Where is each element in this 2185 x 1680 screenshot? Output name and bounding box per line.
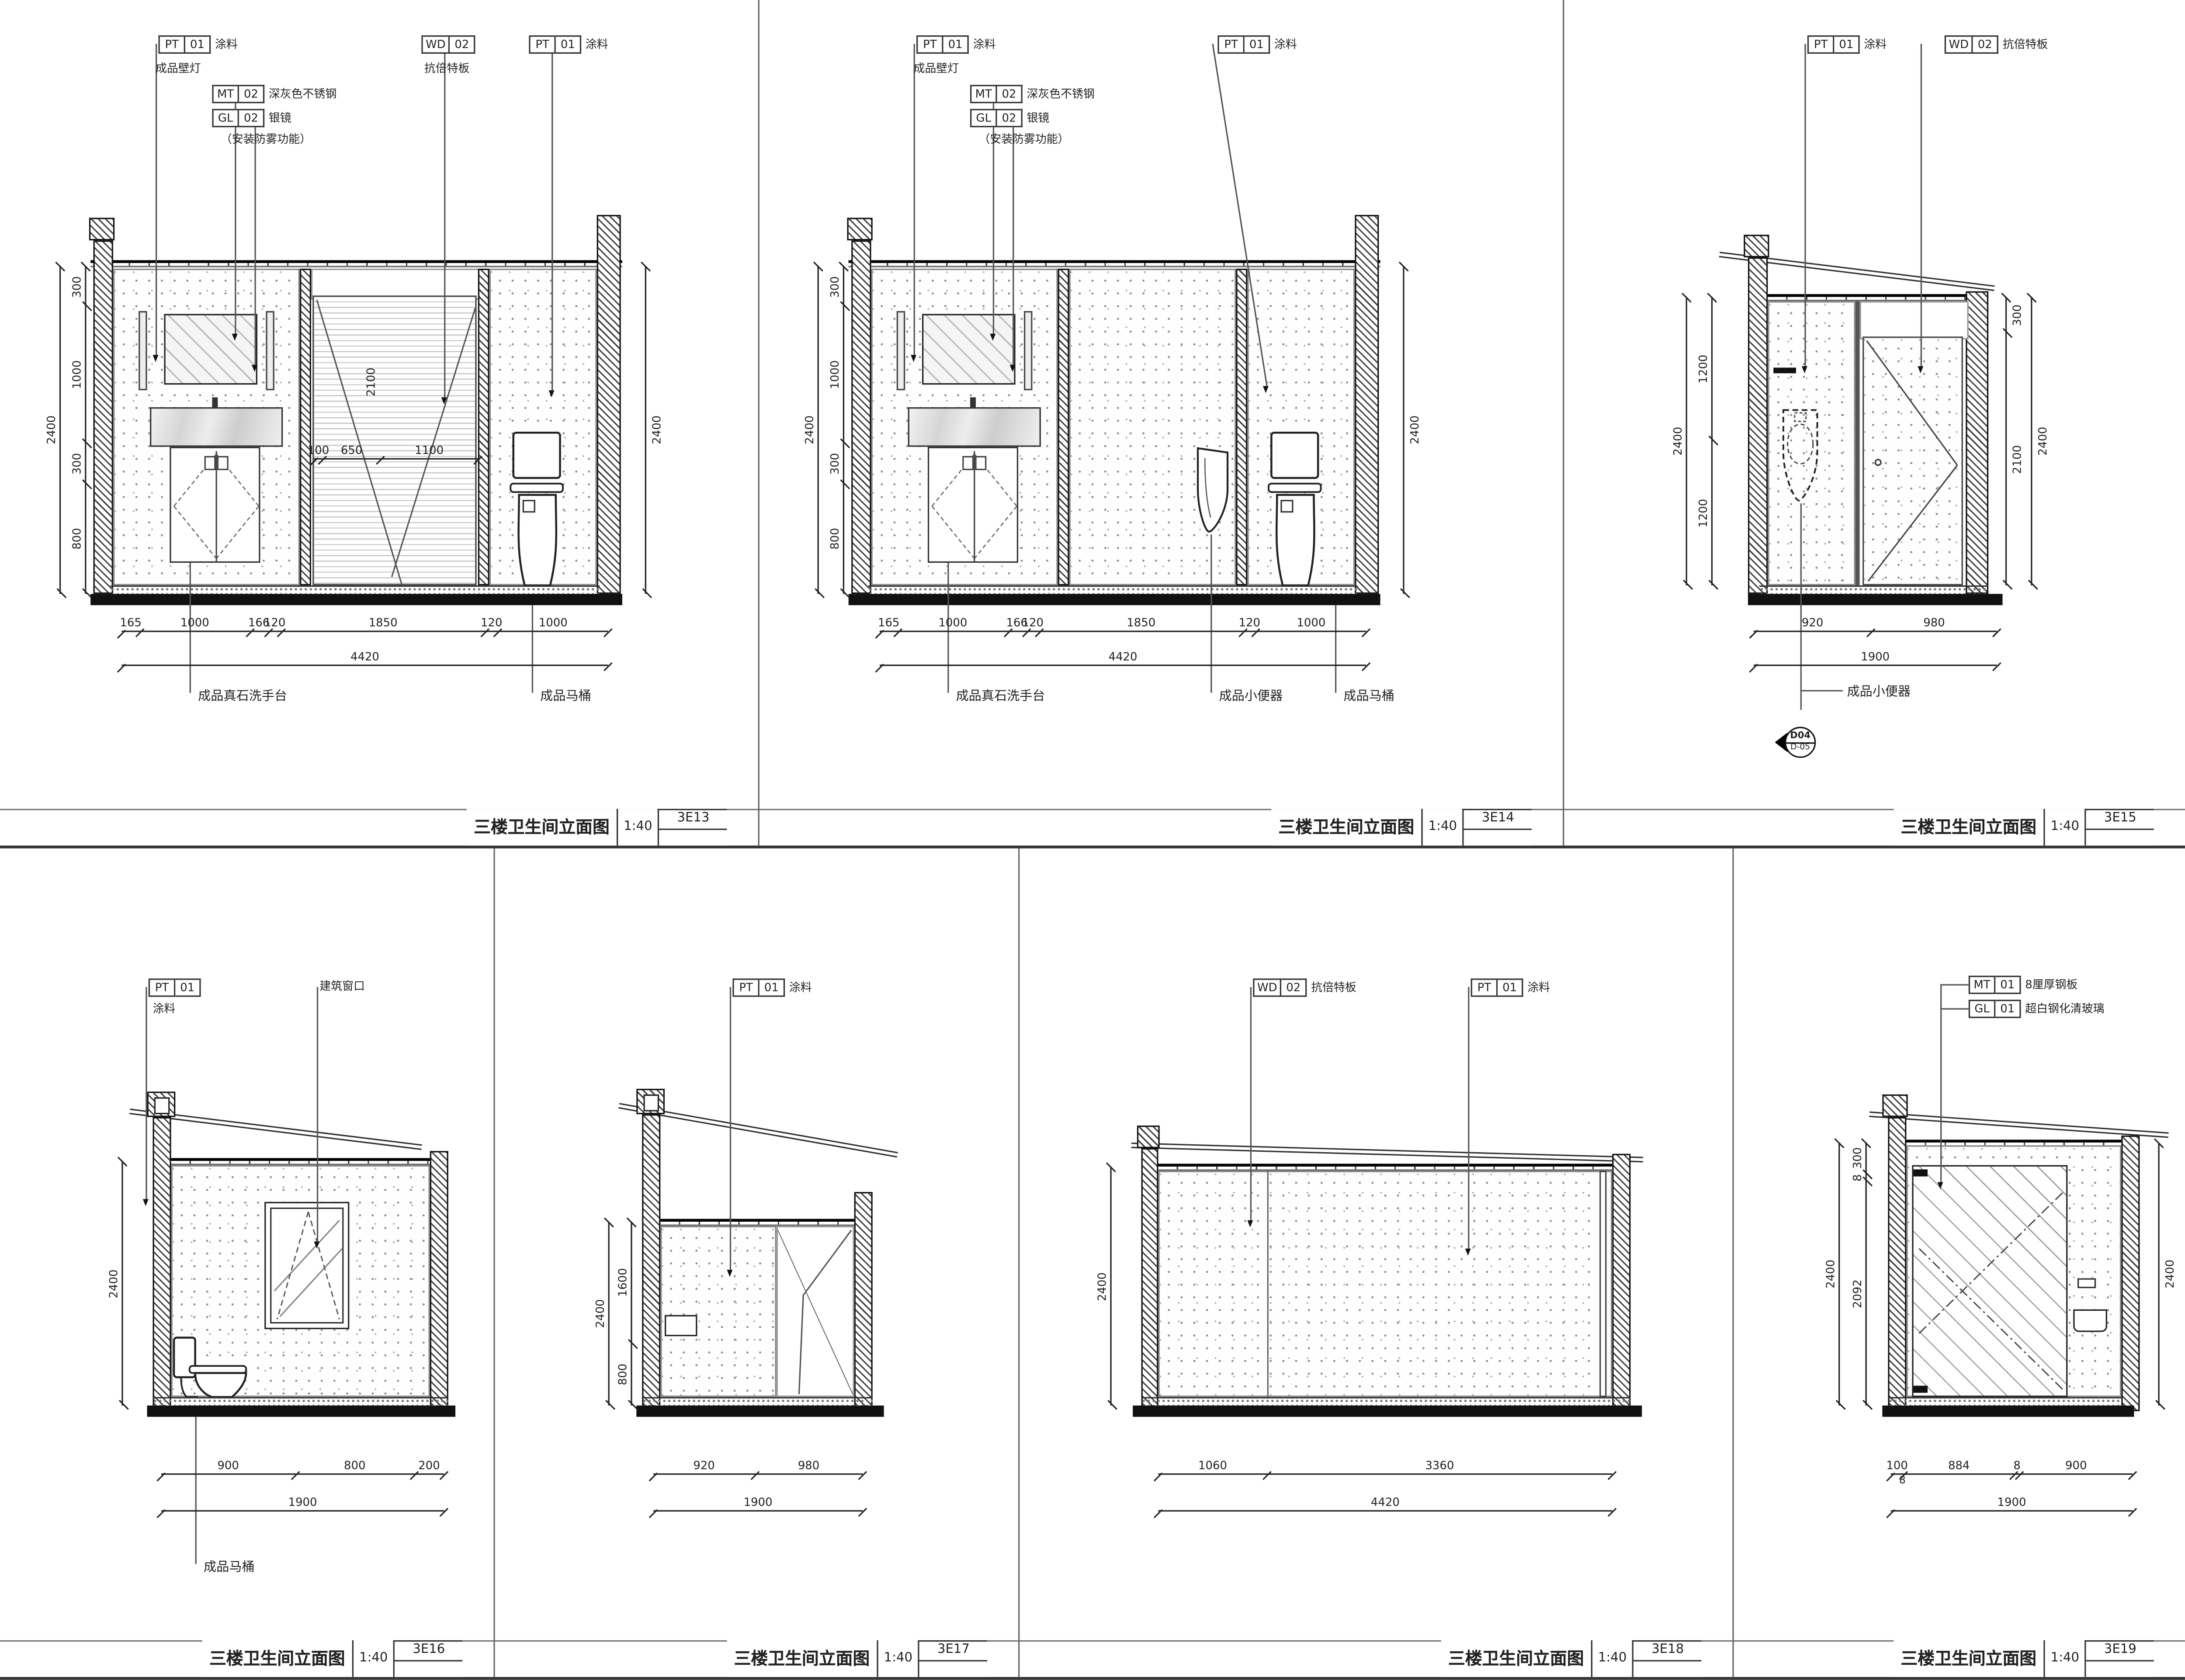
tag-code: PT (149, 978, 175, 997)
wall-right (1355, 215, 1379, 594)
empty-cell (1634, 1662, 1702, 1677)
hinge-hardware (1914, 1386, 1928, 1392)
dim-seg: 300 (2005, 297, 2022, 333)
wall-left (153, 1117, 171, 1411)
lamp-strip (266, 311, 274, 390)
label-leader (195, 1417, 197, 1564)
tag-num: 01 (943, 35, 969, 54)
shelf (1773, 367, 1796, 373)
drawing-number-box: 3E14 (1463, 809, 1532, 845)
floor-tile-band (1888, 1397, 2121, 1405)
ceiling-line (849, 260, 1380, 267)
dim-seg: 1000 (1256, 614, 1366, 632)
empty-cell (395, 1662, 463, 1677)
drawing-scale: 1:40 (1421, 809, 1463, 845)
dim-seg: 100 (314, 441, 323, 460)
drawing-title: 三楼卫生间立面图 (1894, 809, 2043, 845)
tag-code: PT (732, 978, 759, 997)
lamp-strip (1024, 311, 1032, 390)
leader-arrow (990, 334, 995, 341)
titleblock-3e16: 三楼卫生间立面图 1:40 3E16 (202, 1640, 463, 1677)
dim-seg: 120 (1243, 614, 1256, 632)
dim-seg: 1200 (1711, 297, 1728, 441)
tag-text: 涂料 (586, 37, 608, 52)
leader-line (444, 44, 445, 397)
wall-finish (660, 1226, 776, 1397)
leader-line (1940, 984, 1942, 1182)
material-tag-pt01: PT01涂料 (916, 35, 995, 54)
dim-seg: 920 (653, 1456, 755, 1475)
dim-seg: 2400 (1686, 297, 1703, 585)
ceiling-line (171, 1158, 430, 1165)
dim-right-total: 2400 (2158, 1143, 2175, 1406)
urinal-label: 成品小便器 (1847, 682, 1911, 700)
dim-seg: 2400 (1838, 1143, 1856, 1406)
vanity-cabinet (928, 447, 1018, 563)
tag-text: 深灰色不锈钢 (269, 86, 336, 102)
dim-seg: 1000 (498, 614, 608, 632)
tag-num: 02 (239, 85, 264, 103)
dim-seg: 1100 (381, 441, 478, 460)
sheet-bottom-line (0, 1677, 2185, 1680)
dim-seg: 1000 (140, 614, 250, 632)
drawing-number-box: 3E16 (393, 1640, 463, 1677)
floor-tile-band (642, 1397, 873, 1405)
strip-top-line (0, 809, 2185, 810)
material-tag-pt01-right: PT01涂料 (1217, 35, 1297, 54)
dim-bottom-chain: 165 1000 166 120 1850 120 1000 (880, 614, 1366, 632)
floor-slab (849, 594, 1380, 605)
tag-text: 涂料 (1864, 37, 1887, 52)
dim-left-chain: 300 1000 300 800 (843, 266, 860, 594)
dim-seg: 1850 (1039, 614, 1243, 632)
dim-seg: 4420 (121, 648, 608, 666)
wall-right (1966, 291, 1988, 594)
dim-bottom-total: 1900 (1754, 648, 1997, 666)
tag-num: 01 (185, 35, 211, 54)
tag-code: MT (212, 85, 239, 103)
drawing-title: 三楼卫生间立面图 (1894, 1640, 2043, 1677)
dim-seg: 800 (843, 485, 860, 594)
drawing-number: 3E15 (2086, 810, 2154, 830)
drawing-title: 三楼卫生间立面图 (1271, 809, 1421, 845)
glass-centerlines (1914, 1167, 2069, 1399)
tag-num: 02 (450, 35, 475, 54)
dim-bottom-chain: 900 800 200 (161, 1456, 444, 1475)
detail-marker-d04: D04 D-05 (1780, 727, 1820, 766)
tag-code: PT (916, 35, 943, 54)
glass-door-panel (1912, 1165, 2067, 1397)
wall-left (1748, 257, 1768, 594)
drawing-number-box: 3E15 (2085, 809, 2154, 845)
drawing-number-box: 3E17 (918, 1640, 988, 1677)
tag-num: 01 (760, 978, 785, 997)
floor-slab (1882, 1406, 2134, 1417)
transom (1860, 301, 1969, 339)
titleblock-3e15: 三楼卫生间立面图 1:40 3E15 (1894, 809, 2154, 845)
leader-line (317, 987, 318, 1242)
tag-text: 抗倍特板 (1311, 980, 1356, 996)
drawing-number: 3E13 (659, 810, 727, 830)
leader-line (1250, 987, 1252, 1220)
panel-divider (1732, 849, 1734, 1677)
drawing-scale: 1:40 (352, 1640, 394, 1677)
leader-line (914, 44, 915, 355)
tag-text: 银镜 (1027, 110, 1049, 126)
basin (665, 1315, 697, 1337)
dim-bottom-chain: 920 980 (1754, 614, 1997, 632)
drawing-scale: 1:40 (617, 809, 658, 845)
tag-text: 银镜 (269, 110, 291, 126)
tag-code: PT (1471, 978, 1498, 997)
dim-right-total: 2400 (1403, 266, 1420, 594)
dim-seg: 2092 (1866, 1181, 1883, 1406)
dim-seg: 920 (1754, 614, 1872, 632)
toilet-label: 成品马桶 (204, 1557, 255, 1575)
leader-arrow (1802, 366, 1807, 373)
faucet (212, 397, 218, 407)
leader-arrow (1465, 1249, 1471, 1256)
panel-seam (1267, 1171, 1269, 1397)
dim-seg: 300 (85, 443, 102, 485)
drawing-number: 3E16 (395, 1642, 463, 1661)
panel-divider (1018, 849, 1020, 1677)
titleblock-3e13: 三楼卫生间立面图 1:40 3E13 (467, 809, 727, 845)
dim-right-total: 2400 (645, 266, 662, 594)
dim-seg: 300 (1866, 1143, 1883, 1175)
titleblock-3e14: 三楼卫生间立面图 1:40 3E14 (1271, 809, 1532, 845)
tag-code: MT (1969, 976, 1995, 994)
wall-lamp-label: 成品壁灯 (156, 61, 201, 76)
mirror (922, 314, 1016, 384)
dim-seg: 8 (2015, 1456, 2020, 1475)
marker-top-text: D04 (1785, 730, 1816, 741)
dim-seg: 800 (631, 1344, 648, 1406)
toilet (1264, 427, 1326, 588)
leader-line (1940, 1008, 1969, 1009)
tag-text: 8厘厚钢板 (2025, 977, 2077, 993)
material-tag-pt01: PT01涂料 (1807, 35, 1887, 54)
tag-num: 01 (1498, 978, 1523, 997)
dim-seg: 900 (2019, 1456, 2133, 1475)
material-tag-pt01: PT01涂料 (1471, 978, 1550, 997)
panel-3e17: PT01涂料 2400 1600 800 920 980 1900 (495, 849, 1018, 1680)
tag-num: 01 (1995, 976, 2021, 994)
urinal-dashed (1779, 407, 1821, 503)
antifog-note: （安装防雾功能） (221, 132, 311, 147)
material-tag-wd02: WD02抗倍特板 (1253, 978, 1356, 997)
panel-3e18: WD02抗倍特板 PT01涂料 2400 1060 3360 4420 (1020, 849, 1732, 1680)
dim-seg: 2100 (2005, 333, 2022, 585)
wall-fixture (2077, 1278, 2096, 1289)
floor-slab (90, 594, 622, 605)
dim-bottom-chain: 920 980 (653, 1456, 863, 1475)
dim-seg: 1850 (281, 614, 485, 632)
dim-seg: 120 (485, 614, 498, 632)
dim-seg: 4420 (880, 648, 1366, 666)
leader-line (1468, 987, 1469, 1249)
mirror (164, 314, 257, 384)
door-panel (312, 295, 476, 585)
dim-seg: 4420 (1158, 1493, 1612, 1511)
wall-cap (1882, 1095, 1908, 1117)
drawing-number: 3E14 (1464, 810, 1532, 830)
dim-left-total: 2400 (1838, 1143, 1856, 1406)
floor-slab (1133, 1406, 1642, 1417)
tag-num: 01 (1995, 1000, 2021, 1018)
drawing-sheet: PT01涂料 成品壁灯 MT02深灰色不锈钢 GL02银镜 （安装防雾功能） W… (0, 0, 2185, 1680)
tag-text: 涂料 (973, 37, 996, 52)
dim-seg: 200 (414, 1456, 444, 1475)
dim-seg: 1900 (161, 1493, 444, 1511)
dim-seg: 300 (843, 443, 860, 485)
dim-bottom-total: 4420 (121, 648, 608, 666)
leader-arrow (911, 355, 916, 362)
dim-bottom-total: 1900 (653, 1493, 863, 1511)
wall-cap (89, 218, 114, 240)
drawing-scale: 1:40 (1591, 1640, 1633, 1677)
dim-seg: 165 (880, 614, 898, 632)
tag-code: PT (1807, 35, 1834, 54)
partition (1236, 269, 1247, 585)
tag-num: 02 (1281, 978, 1307, 997)
wall-right (1612, 1154, 1630, 1411)
drawing-number: 3E18 (1634, 1642, 1702, 1661)
tag-text: 深灰色不锈钢 (1027, 86, 1094, 102)
tag-text: 涂料 (215, 37, 238, 52)
marker-bottom-text: D-05 (1785, 743, 1816, 752)
leader-line (235, 94, 236, 334)
empty-cell (2086, 830, 2154, 846)
window-label: 建筑窗口 (319, 978, 365, 994)
cap-inner-box (643, 1095, 659, 1112)
dim-seg: 980 (1871, 614, 1997, 632)
tag-code: PT (158, 35, 185, 54)
ceiling-line (90, 260, 622, 267)
leader-line (1921, 44, 1922, 366)
wall-right (597, 215, 621, 594)
dim-seg: 800 (85, 485, 102, 594)
wall-cap (1744, 235, 1769, 257)
dim-bottom-chain: 165 1000 166 120 1850 120 1000 (121, 614, 608, 632)
tag-code: WD (1253, 978, 1281, 997)
vanity-cabinet (170, 447, 260, 563)
drawing-number: 3E19 (2086, 1642, 2154, 1661)
leader-line (156, 44, 157, 355)
dim-bottom-total: 4420 (880, 648, 1366, 666)
titleblock-3e17: 三楼卫生间立面图 1:40 3E17 (727, 1640, 987, 1677)
drawing-title: 三楼卫生间立面图 (202, 1640, 352, 1677)
tag-num: 01 (175, 978, 201, 997)
leader-arrow (314, 1241, 319, 1248)
dim-seg: 1000 (85, 307, 102, 443)
dim-seg: 800 (295, 1456, 414, 1475)
tag-code: GL (970, 109, 997, 127)
sink-label: 成品真石洗手台 (198, 686, 287, 704)
dim-seg: 884 (1904, 1456, 2015, 1475)
wall-left (1141, 1148, 1158, 1411)
tag-code: MT (970, 85, 997, 103)
dim-seg: 2400 (121, 1161, 139, 1406)
panel-divider (1563, 0, 1564, 845)
pt01-text: 涂料 (153, 1001, 176, 1017)
empty-cell (1464, 830, 1532, 846)
dim-seg: 1000 (843, 307, 860, 443)
dim-bottom-chain: 100 884 8 900 (1891, 1456, 2133, 1475)
dim-left-chain: 1600 800 (631, 1222, 648, 1406)
door-swing-lines (1864, 338, 1964, 587)
partition-line (1856, 301, 1860, 585)
panel-3e19: MT018厘厚钢板 GL01超白钢化清玻璃 2400 300 8 2092 24… (1734, 849, 2185, 1680)
lamp-strip (897, 311, 905, 390)
leader-line (1013, 118, 1014, 365)
material-tag-mt02: MT02深灰色不锈钢 (970, 85, 1095, 103)
dim-seg: 980 (755, 1456, 863, 1475)
material-tag-mt02: MT02深灰色不锈钢 (212, 85, 336, 103)
dim-seg: 165 (121, 614, 140, 632)
leader-arrow (252, 365, 257, 372)
material-tag-gl02: GL02银镜 (212, 109, 291, 127)
label-leader (1800, 503, 1802, 710)
tag-code: GL (1969, 1000, 1995, 1018)
material-tag-mt01: MT018厘厚钢板 (1969, 976, 2077, 994)
dim-seg: 120 (1026, 614, 1039, 632)
dim-seg: 1900 (653, 1493, 863, 1511)
tag-num: 02 (239, 109, 264, 127)
dim-seg: 1200 (1711, 441, 1728, 585)
floor-tile-band (110, 585, 600, 594)
urinal-label: 成品小便器 (1219, 686, 1283, 704)
dim-seg: 2400 (1403, 266, 1420, 594)
dim-seg: 2400 (645, 266, 662, 594)
tag-code: PT (1217, 35, 1244, 54)
dim-right-total: 2400 (2031, 297, 2048, 585)
dim-seg: 1900 (1891, 1493, 2133, 1511)
leader-line (255, 118, 256, 365)
leader-arrow (441, 397, 447, 404)
material-tag-pt01-right: PT01涂料 (529, 35, 608, 54)
toilet-side (170, 1335, 252, 1400)
cabinet-doors (171, 448, 262, 564)
wall-lamp-label: 成品壁灯 (914, 61, 959, 76)
material-tag-gl02: GL02银镜 (970, 109, 1049, 127)
shower-lines (778, 1227, 856, 1399)
antifog-note: （安装防雾功能） (978, 132, 1069, 147)
drawing-number: 3E17 (919, 1642, 987, 1661)
leader-arrow (1938, 1182, 1943, 1189)
tag-num: 02 (997, 109, 1023, 127)
dim-seg: 1000 (898, 614, 1008, 632)
toilet-label: 成品马桶 (1343, 686, 1394, 704)
dim-seg: 120 (268, 614, 281, 632)
window-glazing (266, 1203, 350, 1330)
dim-seg: 8 (1866, 1174, 1883, 1181)
leader-arrow (232, 334, 238, 341)
dim-left-total: 2400 (121, 1161, 139, 1406)
dim-right-chain: 300 2100 (2005, 297, 2022, 585)
panel-3e16: PT01 涂料 建筑窗口 2400 900 800 200 1900 成品马桶 (0, 849, 493, 1680)
floor-tile-band (1759, 585, 1988, 594)
leader-line (730, 987, 731, 1270)
panel-3e14: PT01涂料 成品壁灯 MT02深灰色不锈钢 GL02银镜 （安装防雾功能） P… (786, 28, 1516, 809)
panel-edge-strip (1599, 1171, 1606, 1397)
leader-line (993, 94, 994, 334)
floor-tile-band (153, 1397, 448, 1405)
tag-code: GL (212, 109, 239, 127)
leader-arrow (1247, 1220, 1253, 1227)
wall-right (430, 1151, 448, 1411)
tag-num: 01 (1245, 35, 1270, 54)
titleblock-3e19: 三楼卫生间立面图 1:40 3E19 (1894, 1640, 2154, 1677)
empty-cell (919, 1662, 987, 1677)
dim-seg: 2400 (1110, 1167, 1127, 1406)
faucet (970, 397, 976, 407)
tag-text: 超白钢化清玻璃 (2025, 1001, 2104, 1017)
tag-num: 02 (997, 85, 1023, 103)
wall-left (1888, 1117, 1906, 1411)
drawing-number-box: 3E19 (2085, 1640, 2154, 1677)
leader-arrow (153, 355, 159, 362)
drawing-scale: 1:40 (877, 1640, 918, 1677)
material-tag-pt01: PT01涂料 (732, 978, 812, 997)
toilet (506, 427, 569, 588)
panel-divider (758, 0, 760, 845)
floor-slab (636, 1406, 884, 1417)
wall-right (2121, 1136, 2140, 1411)
dim-seg: 3360 (1267, 1456, 1613, 1475)
empty-cell (2086, 1662, 2154, 1677)
door-panel (1862, 336, 1963, 585)
leader-arrow (1263, 386, 1269, 393)
leader-arrow (549, 390, 555, 397)
door-dim-chain: 100 650 1100 (314, 441, 478, 460)
leader-arrow (727, 1270, 732, 1277)
tag-code: WD (421, 35, 450, 54)
wall-cap (847, 218, 872, 240)
dim-seg: 100 (1891, 1456, 1904, 1475)
leader-arrow (143, 1199, 149, 1206)
titleblock-3e18: 三楼卫生间立面图 1:40 3E18 (1441, 1640, 1702, 1677)
roof-slope (1869, 1112, 2168, 1138)
floor-slab (147, 1406, 455, 1417)
dim-seg: 2400 (2031, 297, 2048, 585)
floor-tile-band (868, 585, 1358, 594)
sink-label: 成品真石洗手台 (956, 686, 1045, 704)
dim-left-total: 2400 (1110, 1167, 1127, 1406)
label-leader (1800, 690, 1843, 691)
drawing-title: 三楼卫生间立面图 (467, 809, 617, 845)
vanity-counter (908, 407, 1041, 447)
tag-text: 涂料 (1274, 37, 1297, 52)
empty-cell (659, 830, 727, 846)
dim-left-total: 2400 (1686, 297, 1703, 585)
wd02-text: 抗倍特板 (424, 61, 470, 76)
drawing-scale: 1:40 (2043, 1640, 2085, 1677)
window (264, 1202, 349, 1329)
shower-zone (777, 1226, 854, 1397)
material-tag-pt01: PT01 (149, 978, 201, 997)
dim-left-chain: 300 1000 300 800 (85, 266, 102, 594)
material-tag-wd02: WD02 (421, 35, 475, 54)
panel-divider (493, 849, 495, 1677)
panel-3e13: PT01涂料 成品壁灯 MT02深灰色不锈钢 GL02银镜 （安装防雾功能） W… (28, 28, 758, 809)
cap-inner-box (154, 1097, 170, 1114)
dim-seg: 1600 (631, 1222, 648, 1344)
dim-left-chain: 300 8 2092 (1866, 1143, 1883, 1406)
dim-seg: 300 (843, 266, 860, 307)
tag-num: 01 (1834, 35, 1859, 54)
material-tag-gl01: GL01超白钢化清玻璃 (1969, 1000, 2105, 1018)
